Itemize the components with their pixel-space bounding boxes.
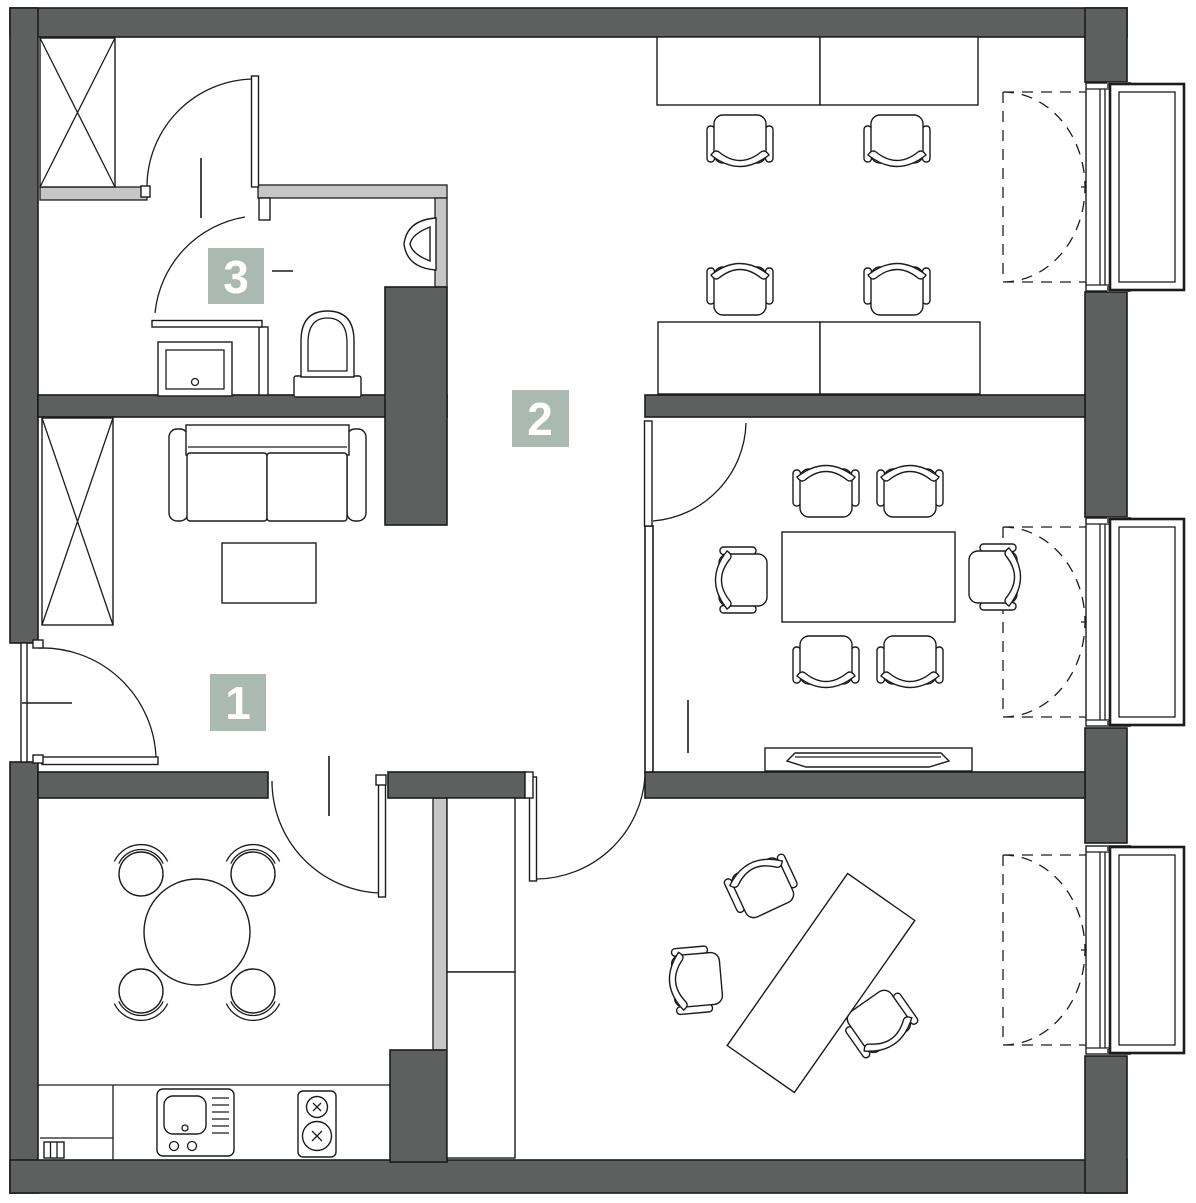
office-corridor-door xyxy=(525,772,645,881)
room-label-2-text: 2 xyxy=(527,393,553,445)
bathroom-entry-door xyxy=(141,76,259,197)
toilet xyxy=(294,311,361,397)
room-label-3-text: 3 xyxy=(223,251,249,303)
cooktop xyxy=(298,1091,336,1157)
wardrobe-crossbox-hall xyxy=(42,418,113,625)
window-top-right xyxy=(1003,82,1184,292)
room-label-3: 3 xyxy=(208,248,264,304)
room-label-1: 1 xyxy=(210,674,266,731)
wardrobe-crossbox-top xyxy=(40,38,115,187)
window-bottom-right xyxy=(1003,845,1184,1055)
sofa xyxy=(169,425,366,521)
window-middle-right xyxy=(1003,517,1184,727)
kitchen-sink xyxy=(157,1089,234,1156)
office-desks-top xyxy=(657,37,980,394)
bathroom-sink xyxy=(158,342,232,396)
structural-walls xyxy=(10,8,1127,1193)
sideboard xyxy=(765,748,972,771)
conference-table xyxy=(782,532,955,622)
office-chairs-top xyxy=(707,115,930,315)
room-label-2: 2 xyxy=(512,390,569,447)
meeting-room-door xyxy=(645,421,747,526)
floor-plan: 1 2 3 xyxy=(0,0,1196,1203)
dining-table xyxy=(144,879,250,985)
urinal xyxy=(404,218,436,270)
coffee-table xyxy=(222,543,316,603)
room-label-1-text: 1 xyxy=(225,677,251,729)
floor-plan-canvas: 1 2 3 xyxy=(0,0,1196,1203)
